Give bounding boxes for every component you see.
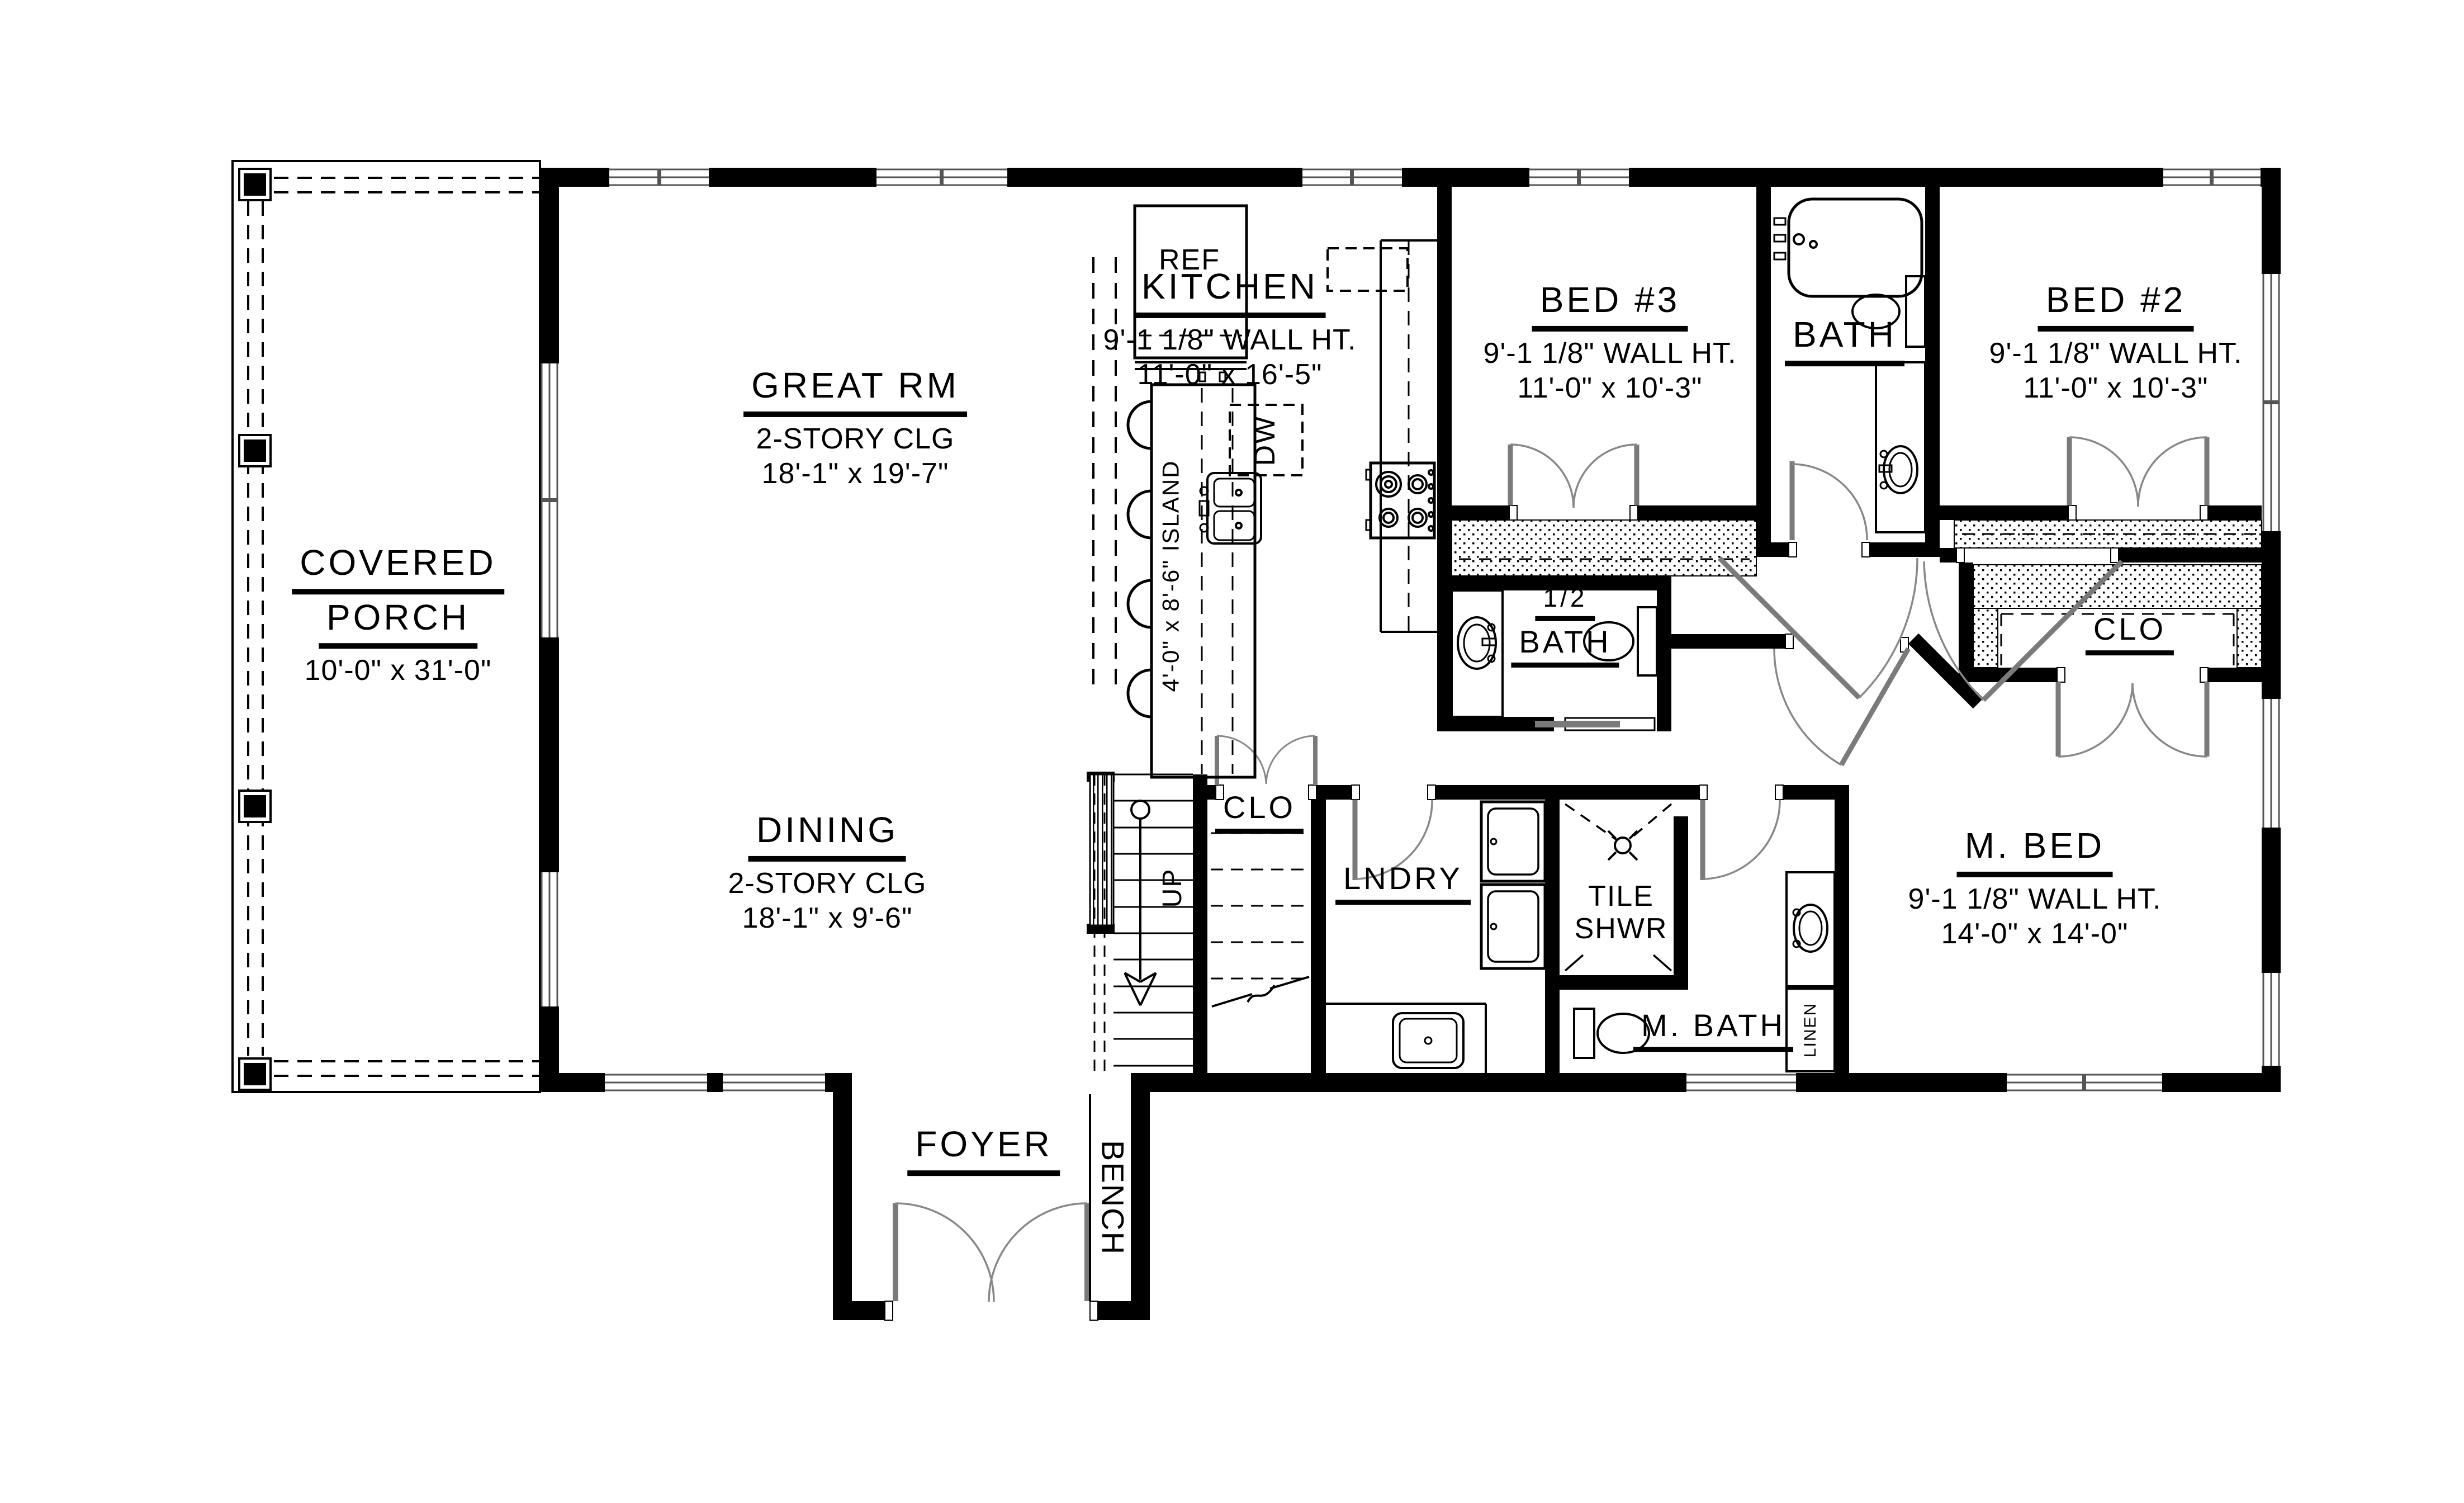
half-bath-vanity <box>1452 590 1503 717</box>
utility-sink <box>1393 1013 1463 1068</box>
bath-vanity <box>1876 362 1925 532</box>
label-foyer: FOYER <box>907 1124 1060 1179</box>
master-bath-door <box>1703 800 1780 880</box>
label-half-bath: 1/2 BATH <box>1511 584 1619 671</box>
label-great-rm: GREAT RM 2-STORY CLG 18'-1" x 19'-7" <box>743 366 967 490</box>
floor-plan: COVERED PORCH 10'-0" x 31'-0" GREAT RM 2… <box>0 0 2464 1503</box>
shower-head <box>1608 831 1637 860</box>
label-dining: DINING 2-STORY CLG 18'-1" x 9'-6" <box>728 810 927 934</box>
label-kitchen: KITCHEN 9'-1 1/8" WALL HT. 11'-0" x 16'-… <box>1103 267 1357 391</box>
label-covered-porch: COVERED PORCH 10'-0" x 31'-0" <box>292 543 504 687</box>
master-bed-door <box>1774 649 1908 765</box>
laundry-fixtures <box>1326 802 1545 1073</box>
label-master-closet: CLO <box>2086 612 2174 659</box>
floor-plan-linework <box>0 0 2464 1503</box>
label-island: 4'-0" x 8'-6" ISLAND <box>1157 460 1183 692</box>
washer-dryer <box>1481 802 1545 968</box>
label-bed3: BED #3 9'-1 1/8" WALL HT. 11'-0" x 10'-3… <box>1484 280 1737 404</box>
stair-balusters <box>1090 774 1113 925</box>
label-bed2: BED #2 9'-1 1/8" WALL HT. 11'-0" x 10'-3… <box>1989 280 2243 404</box>
label-tile-shower: TILE SHWR <box>1575 880 1668 945</box>
kitchen-sink <box>1200 473 1261 543</box>
master-closet-doors <box>2058 682 2207 757</box>
label-laundry: LNDRY <box>1335 861 1471 908</box>
bath-door <box>1792 461 1867 540</box>
section-break <box>1212 977 1309 1006</box>
entry-double-door <box>895 1203 1087 1302</box>
master-bath-vanity <box>1787 872 1835 986</box>
kitchen-counter <box>1381 240 1437 632</box>
porch-posts <box>239 169 271 1090</box>
island-stools <box>1128 401 1152 717</box>
label-stair-closet: CLO <box>1215 790 1304 837</box>
stairs-up-arrow <box>1125 801 1156 1005</box>
label-dw: DW <box>1249 415 1281 466</box>
bed3-closet-doors <box>1510 445 1637 508</box>
label-linen: LINEN <box>1801 1003 1820 1057</box>
label-master-bath: M. BATH <box>1633 1008 1793 1055</box>
label-ref: REF <box>1159 244 1220 276</box>
label-master-bed: M. BED 9'-1 1/8" WALL HT. 14'-0" x 14'-0… <box>1908 826 2162 950</box>
range <box>1366 463 1434 538</box>
label-bath: BATH <box>1785 315 1904 370</box>
label-up: UP <box>1158 868 1188 908</box>
label-bench: BENCH <box>1095 1140 1130 1255</box>
kitchen-island <box>1128 385 1255 777</box>
bed2-closet-doors <box>2069 437 2207 507</box>
bathtub <box>1774 199 1922 296</box>
